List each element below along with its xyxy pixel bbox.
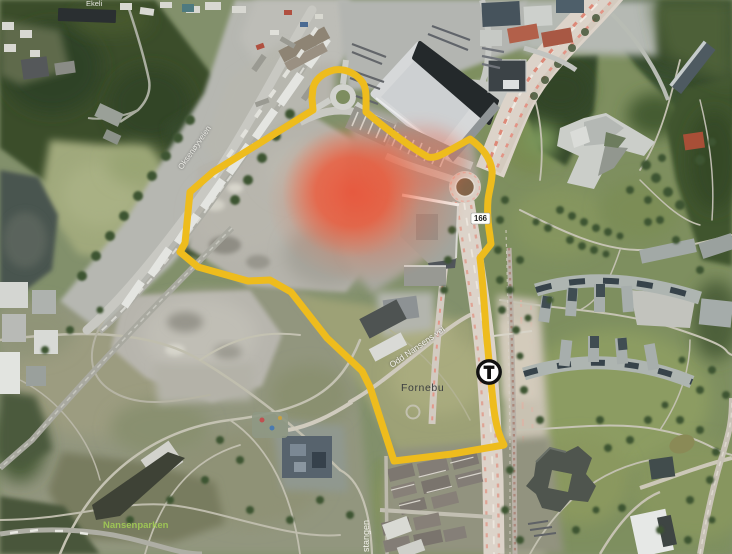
svg-text:Ekeli: Ekeli: [86, 0, 103, 8]
svg-text:Fornebu: Fornebu: [401, 382, 444, 394]
svg-text:Nansenparken: Nansenparken: [103, 520, 169, 531]
svg-text:166: 166: [474, 214, 488, 223]
svg-text:stangen: stangen: [361, 520, 371, 552]
